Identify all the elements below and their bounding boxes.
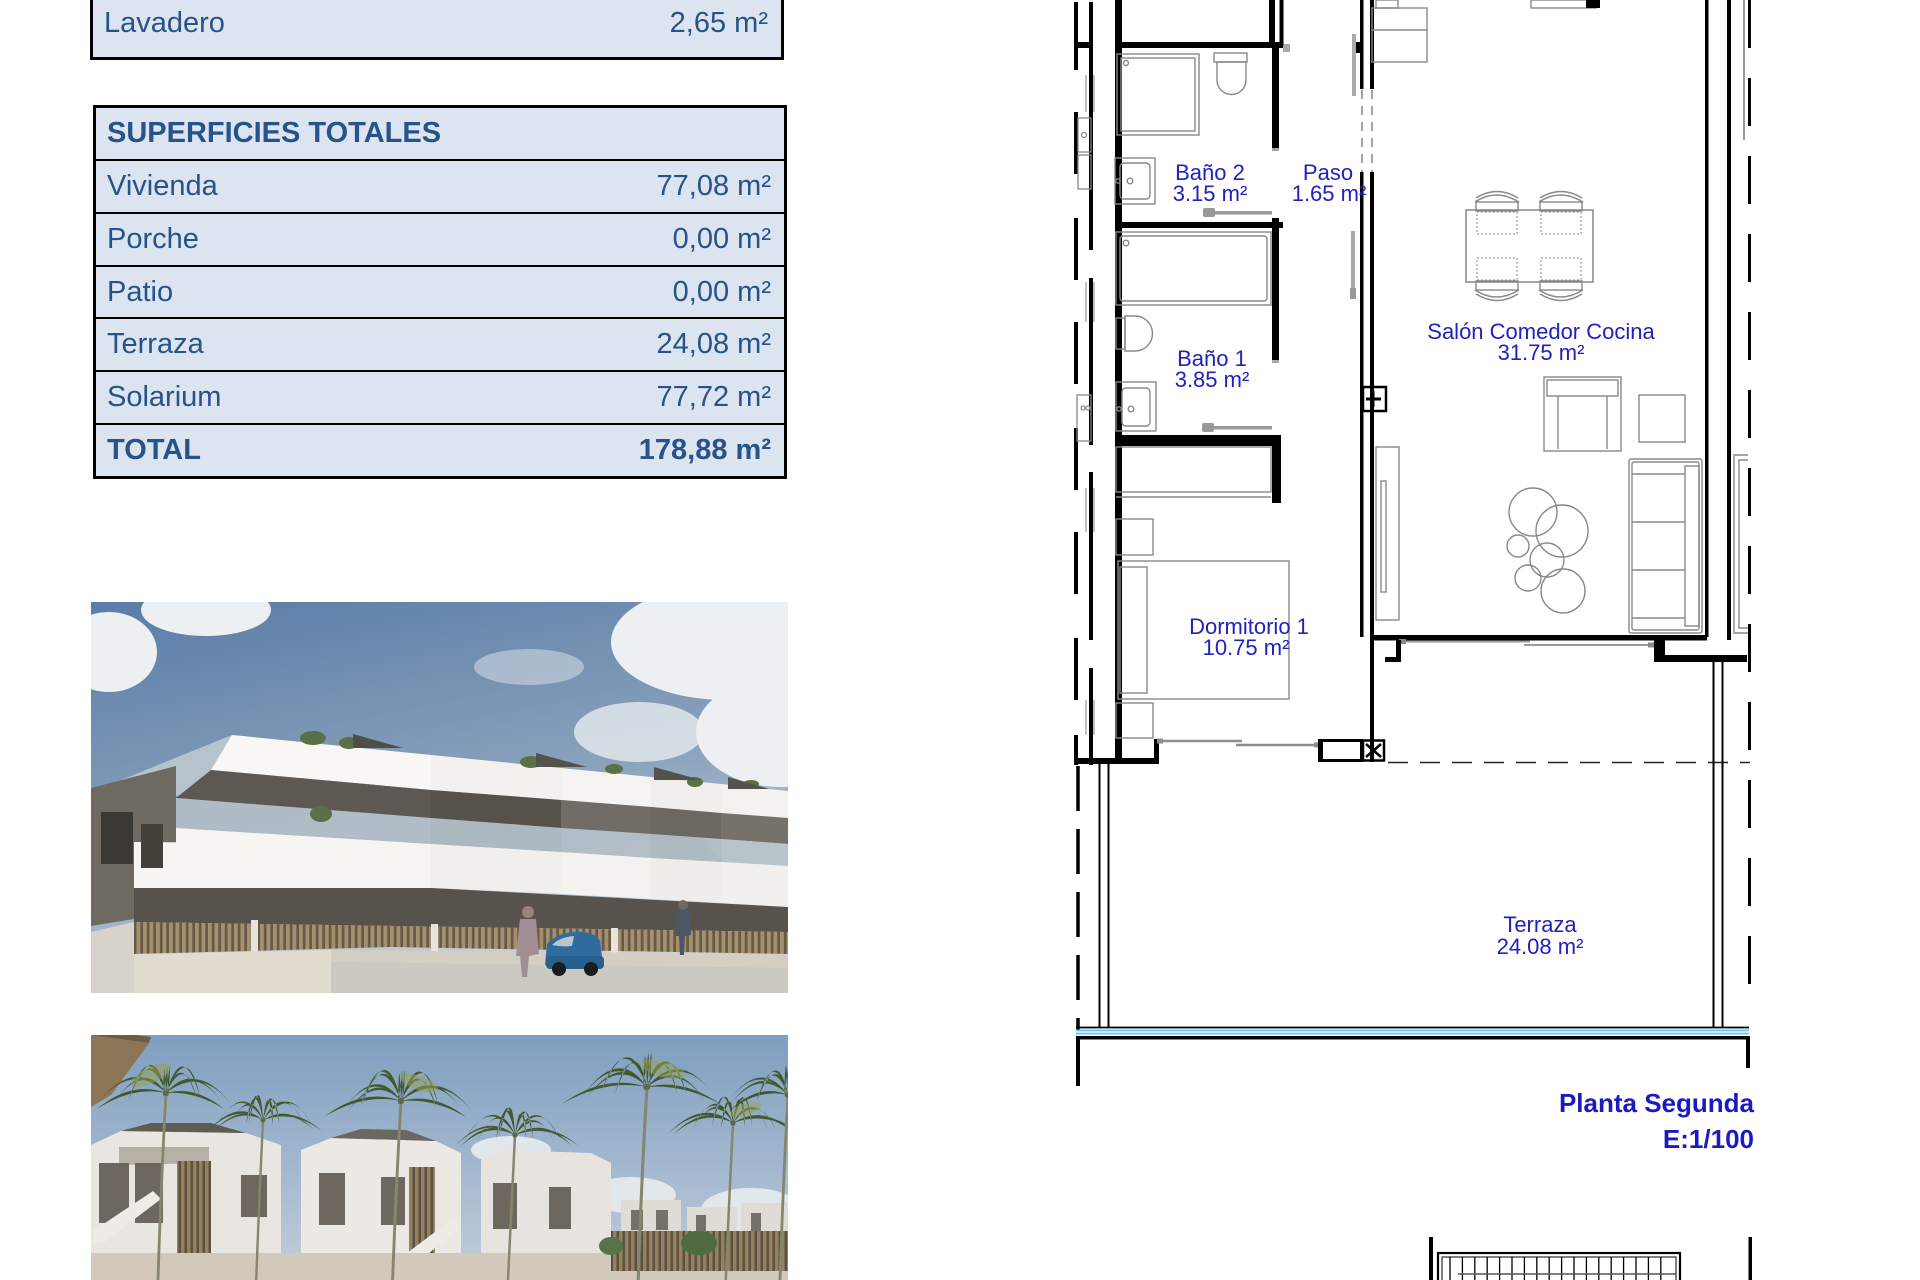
svg-text:Planta Segunda: Planta Segunda: [1559, 1088, 1755, 1118]
svg-text:1.65 m²: 1.65 m²: [1292, 181, 1367, 206]
svg-text:10.75 m²: 10.75 m²: [1203, 635, 1290, 660]
svg-text:24.08 m²: 24.08 m²: [1497, 934, 1584, 959]
svg-text:3.85 m²: 3.85 m²: [1175, 367, 1250, 392]
svg-text:3.15 m²: 3.15 m²: [1173, 181, 1248, 206]
svg-text:31.75 m²: 31.75 m²: [1498, 340, 1585, 365]
svg-text:E:1/100: E:1/100: [1663, 1124, 1754, 1154]
